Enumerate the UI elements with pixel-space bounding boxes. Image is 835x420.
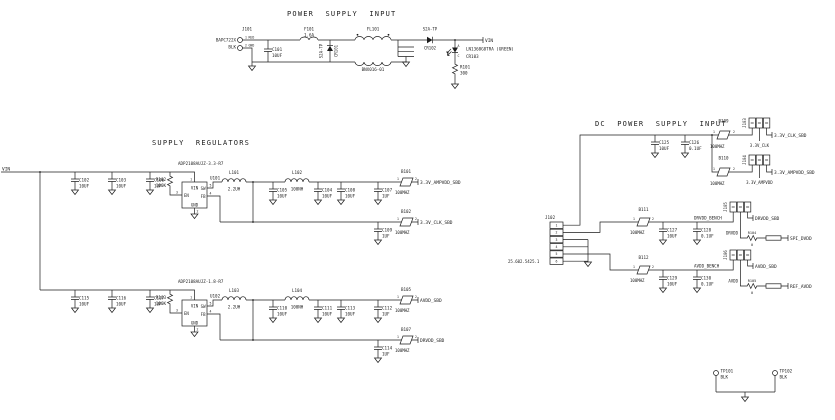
fl101-polarity-dot [388, 34, 390, 36]
b111-pin2-number: 2 [652, 217, 654, 221]
c104-refdes: C104 [322, 188, 333, 193]
ferrite-bead-b110 [717, 168, 730, 176]
c126-value: 0.1UF [689, 146, 702, 151]
ground-symbol [109, 190, 116, 195]
b107-pin1-number: 1 [397, 335, 399, 339]
capacitor-c103 [108, 179, 116, 182]
u101-pin-en: EN [184, 193, 189, 198]
l102-refdes: L102 [292, 170, 303, 175]
u101-pin5-number: 5 [210, 183, 212, 187]
tp102-color: BLK [780, 375, 788, 380]
section-title-power-supply-input: POWER SUPPLY INPUT [287, 10, 396, 18]
r105-refdes: R105 [748, 279, 756, 283]
cr103-anode-label: A [458, 44, 460, 48]
c101-value: 10UF [272, 53, 283, 58]
c107-refdes: C107 [382, 188, 393, 193]
ground-symbol [249, 66, 256, 71]
section-title-supply-regulators: SUPPLY REGULATORS [152, 139, 250, 147]
l104-refdes: L104 [292, 288, 303, 293]
j102-pin1-number: 1 [556, 223, 558, 227]
j105-refdes: J105 [723, 202, 728, 212]
schematic-canvas: POWER SUPPLY INPUT J101 BAPC722X BLK 1 2… [0, 0, 835, 420]
b112-refdes: B112 [638, 255, 649, 260]
cr103-partnum: LN1368G8TRA (GREEN) [466, 47, 514, 52]
cr101-partnum: S2A-TP [319, 43, 324, 58]
net-flag-3v3-ampvdd-sbd: 3.3V_AMPVDD_SBD [420, 180, 461, 186]
cr102-diode-symbol [427, 37, 433, 43]
capacitor-c130 [693, 277, 701, 280]
u102-pin-sw: SW [201, 304, 206, 309]
capacitor-c109 [374, 229, 382, 232]
l104-value: 100NH [291, 305, 304, 310]
j102-pin6-number: 6 [556, 259, 558, 263]
capacitor-c116 [108, 297, 116, 300]
r104-jumper-body [766, 236, 781, 240]
j101-pin1-name: RED [249, 35, 255, 39]
c109-refdes: C109 [382, 228, 393, 233]
j106-refdes: J106 [723, 250, 728, 260]
capacitor-c111 [314, 307, 322, 310]
b112-pin2-number: 2 [652, 265, 654, 269]
net-flag-avdd-sbd-dc: AVDD_SBD [755, 264, 777, 270]
j102-pin2-number: 2 [556, 231, 558, 235]
u101-pin3-number: 3 [176, 191, 178, 195]
r103-refdes: R103 [156, 295, 167, 300]
b101-value: 100MHZ [395, 190, 410, 195]
net-flag-drvdd-sbd: DRVDD_SBD [420, 338, 445, 344]
u102-pin3-number: 3 [176, 309, 178, 313]
capacitor-c114 [374, 347, 382, 350]
connector-j102 [550, 222, 563, 264]
ground-symbol [403, 62, 410, 67]
cr101-refdes: CR101 [334, 44, 339, 57]
ground-symbol [375, 200, 382, 205]
ferrite-bead-b105 [400, 296, 413, 304]
b102-pin1-number: 1 [397, 217, 399, 221]
ground-symbol [315, 318, 322, 323]
c103-value: 10UF [116, 184, 127, 189]
j101-pin2-name: GND [249, 43, 255, 47]
c102-value: 10UF [79, 184, 90, 189]
r102-refdes: R102 [156, 177, 167, 182]
j101-pin2-circle [238, 46, 243, 51]
r103-value: 100K [156, 301, 167, 306]
sr-wires [1, 172, 418, 358]
j101-wire-color: BLK [228, 45, 236, 50]
ground-symbol [270, 318, 277, 323]
u102-pin-en: EN [184, 311, 189, 316]
c114-refdes: C114 [382, 346, 393, 351]
c107-value: 1UF [382, 194, 390, 199]
u101-partnum: ADP2108AUJZ-3.3-R7 [178, 161, 224, 166]
b102-refdes: B102 [401, 209, 412, 214]
u101-pin2-number: 2 [197, 210, 199, 214]
b110-pin1-number: 1 [713, 167, 715, 171]
net-label-avdd-bench: AVDD_BENCH [694, 264, 720, 269]
ground-symbol [375, 318, 382, 323]
ground-symbol [375, 240, 382, 245]
junction-dot [252, 221, 254, 223]
j101-pin1-number: 1 [245, 36, 247, 40]
inductor-l104 [285, 297, 309, 300]
tp102-circle [773, 371, 778, 376]
b110-refdes: B110 [718, 156, 729, 161]
b107-value: 100MHZ [395, 348, 410, 353]
net-label-drvdd-bench: DRVDD_BENCH [694, 216, 722, 221]
r101-value: 300 [460, 71, 468, 76]
r105-value: 0 [751, 291, 753, 295]
c109-value: 1UF [382, 234, 390, 239]
net-flag-vin-input: VIN [2, 167, 10, 173]
f101-value: 1.6A [304, 33, 315, 38]
b101-pin1-number: 1 [397, 177, 399, 181]
c115-refdes: C115 [79, 296, 90, 301]
ferrite-bead-b102 [400, 218, 413, 226]
c103-refdes: C103 [116, 178, 127, 183]
resistor-r105 [745, 284, 759, 289]
c108-value: 10UF [345, 194, 356, 199]
c101-refdes: C101 [272, 47, 283, 52]
u102-pin-vin: VIN [191, 304, 199, 309]
u101-pin-vin: VIN [191, 186, 199, 191]
net-flag-ref-avdd: REF_AVDD [790, 284, 812, 290]
cr103-refdes: CR103 [466, 54, 479, 59]
capacitor-c104 [314, 189, 322, 192]
j103-refdes: J103 [742, 118, 747, 128]
resistor-r103 [168, 292, 173, 306]
capacitor-c129 [659, 277, 667, 280]
b112-value: 100MHZ [630, 278, 645, 283]
junction-dot [252, 299, 254, 301]
section-dc-power-supply-input: DC POWER SUPPLY INPUT J102 25.602.5425.1… [508, 118, 815, 295]
capacitor-c107 [374, 189, 382, 192]
c110-refdes: C110 [277, 306, 288, 311]
junction-dot [39, 171, 41, 173]
capacitor-c106 [146, 179, 154, 182]
ground-symbol [660, 240, 667, 245]
c113-refdes: C113 [345, 306, 356, 311]
ground-symbol [191, 332, 198, 337]
j101-pin2-number: 2 [245, 44, 247, 48]
section-power-supply-input: POWER SUPPLY INPUT J101 BAPC722X BLK 1 2… [216, 10, 514, 89]
u102-pin-gnd: GND [191, 321, 199, 326]
b111-refdes: B111 [638, 207, 649, 212]
b109-refdes: B109 [718, 119, 729, 124]
net-flag-vin: VIN [485, 38, 493, 44]
b101-refdes: B101 [401, 169, 412, 174]
u101-pin1-number: 1 [190, 178, 192, 182]
c128-refdes: C128 [701, 228, 712, 233]
j101-pin1-circle [238, 38, 243, 43]
net-label-3v3-ampvdd: 3.3V_AMPVDD [746, 180, 773, 185]
u102-pin2-number: 2 [197, 328, 199, 332]
c130-refdes: C130 [701, 276, 712, 281]
section-test-points: TP101 BLK TP102 BLK [714, 369, 793, 402]
b105-pin2-number: 2 [415, 295, 417, 299]
r105-jumper-body [766, 284, 781, 288]
header-j103 [749, 118, 770, 128]
net-label-drvdd: DRVDD [726, 231, 739, 236]
b102-value: 100MHZ [395, 230, 410, 235]
ground-symbol [742, 397, 749, 402]
b107-refdes: B107 [401, 327, 412, 332]
b112-pin1-number: 1 [633, 265, 635, 269]
c129-value: 10UF [667, 282, 678, 287]
c116-value: 10UF [116, 302, 127, 307]
u102-pin1-number: 1 [190, 296, 192, 300]
ground-symbol [109, 308, 116, 313]
c111-value: 10UF [322, 312, 333, 317]
ground-symbol [338, 318, 345, 323]
header-j104 [749, 155, 770, 165]
c105-refdes: C105 [277, 188, 288, 193]
net-flag-3v3-ampvdd-sbd-dc: 3.3V_AMPVDD_SBD [774, 170, 815, 176]
b102-pin2-number: 2 [415, 217, 417, 221]
net-flag-3v3-clk-sbd-dc: 3.3V_CLK_SBD [774, 133, 807, 139]
ground-symbol [585, 262, 592, 267]
l103-value: 2.2UH [228, 305, 241, 310]
r102-value: 100K [156, 183, 167, 188]
ground-symbol [452, 84, 459, 89]
c125-value: 10UF [659, 146, 670, 151]
b110-value: 100MHZ [710, 181, 725, 186]
cr103-cathode-label: C [458, 54, 460, 58]
u101-pin-gnd: GND [191, 203, 199, 208]
capacitor-c127 [659, 229, 667, 232]
c114-value: 1UF [382, 352, 390, 357]
j102-partnum: 25.602.5425.1 [508, 259, 540, 264]
u102-pin4-number: 4 [210, 309, 212, 313]
fl101-partnum: BNX016-01 [362, 67, 385, 72]
ferrite-bead-b111 [637, 218, 650, 226]
b111-pin1-number: 1 [633, 217, 635, 221]
capacitor-c126 [681, 142, 689, 145]
capacitor-c128 [693, 229, 701, 232]
ferrite-bead-b107 [400, 336, 413, 344]
b111-value: 100MHZ [630, 230, 645, 235]
c113-value: 10UF [345, 312, 356, 317]
psi-wires [243, 37, 484, 85]
tp101-color: BLK [721, 375, 729, 380]
r104-value: 0 [751, 243, 753, 247]
cr101-diode-symbol [327, 46, 333, 51]
c127-value: 10UF [667, 234, 678, 239]
j101-partnum: BAPC722X [216, 38, 237, 43]
l103-refdes: L103 [229, 288, 240, 293]
net-label-3v3-clk: 3.3V_CLK [750, 143, 770, 148]
net-flag-avdd-sbd: AVDD_SBD [420, 298, 442, 304]
header-j105 [730, 202, 751, 212]
c112-value: 1UF [382, 312, 390, 317]
b105-refdes: B105 [401, 287, 412, 292]
header-j106 [730, 250, 751, 260]
inductor-l103 [222, 297, 246, 300]
cr102-refdes: CR102 [424, 46, 437, 51]
j101-refdes: J101 [242, 27, 253, 32]
c112-refdes: C112 [382, 306, 393, 311]
c125-refdes: C125 [659, 140, 670, 145]
c116-refdes: C116 [116, 296, 127, 301]
l101-value: 2.2UH [228, 187, 241, 192]
b109-value: 100MHZ [710, 144, 725, 149]
junction-dot [252, 181, 254, 183]
inductor-l102 [285, 179, 309, 182]
ground-symbol [191, 214, 198, 219]
c102-refdes: C102 [79, 178, 90, 183]
ground-symbol [682, 153, 689, 158]
ground-symbol [147, 190, 154, 195]
c111-refdes: C111 [322, 306, 333, 311]
c108-refdes: C108 [345, 188, 356, 193]
capacitor-c105 [269, 189, 277, 192]
b109-pin1-number: 1 [713, 130, 715, 134]
b107-pin2-number: 2 [415, 335, 417, 339]
l101-refdes: L101 [229, 170, 240, 175]
c129-refdes: C129 [667, 276, 678, 281]
c127-refdes: C127 [667, 228, 678, 233]
capacitor-c112 [374, 307, 382, 310]
cr102-partnum: S2A-TP [423, 27, 438, 32]
resistor-r101 [453, 62, 458, 76]
u102-refdes: U102 [210, 294, 221, 299]
b101-pin2-number: 2 [415, 177, 417, 181]
ground-symbol [660, 288, 667, 293]
capacitor-c117 [146, 297, 154, 300]
ground-symbol [72, 190, 79, 195]
j102-refdes: J102 [545, 215, 556, 220]
tp102-refdes: TP102 [780, 369, 793, 374]
ground-symbol [72, 308, 79, 313]
ferrite-bead-b109 [717, 131, 730, 139]
u102-pin-fb: FB [201, 312, 206, 317]
junction-dot [711, 134, 713, 136]
c128-value: 0.1UF [701, 234, 714, 239]
ground-symbol [652, 153, 659, 158]
ferrite-bead-b101 [400, 178, 413, 186]
u102-partnum: ADP2108AUJZ-1.8-R7 [178, 279, 224, 284]
ground-symbol [270, 200, 277, 205]
junction-dot [252, 339, 254, 341]
l102-value: 100NH [291, 187, 304, 192]
net-flag-3v3-clk-sbd: 3.3V_CLK_SBD [420, 220, 453, 226]
capacitor-c113 [337, 307, 345, 310]
ground-symbol [338, 200, 345, 205]
net-flag-spi-dvdd: SPI_DVDD [790, 236, 812, 242]
ground-symbol [147, 308, 154, 313]
capacitor-c102 [71, 179, 79, 182]
b109-pin2-number: 2 [733, 130, 735, 134]
u101-refdes: U101 [210, 176, 221, 181]
j104-refdes: J104 [742, 155, 747, 165]
c104-value: 10UF [322, 194, 333, 199]
ground-symbol [375, 358, 382, 363]
capacitor-c110 [269, 307, 277, 310]
c110-value: 10UF [277, 312, 288, 317]
capacitor-c115 [71, 297, 79, 300]
r101-refdes: R101 [460, 65, 471, 70]
j102-pin4-number: 4 [556, 245, 558, 249]
j102-pin5-number: 5 [556, 252, 558, 256]
tp101-refdes: TP101 [721, 369, 734, 374]
f101-refdes: F101 [304, 27, 315, 32]
cr103-led-symbol [452, 48, 458, 53]
net-flag-drvdd-sbd-dc: DRVDD_SBD [755, 216, 780, 222]
capacitor-c125 [651, 142, 659, 145]
fl101-polarity-dot [357, 34, 359, 36]
c115-value: 10UF [79, 302, 90, 307]
r104-refdes: R104 [748, 231, 756, 235]
junction-dot [454, 39, 456, 41]
u101-pin-fb: FB [201, 194, 206, 199]
u101-pin-sw: SW [201, 186, 206, 191]
c126-refdes: C126 [689, 140, 700, 145]
ground-symbol [694, 240, 701, 245]
tp101-circle [714, 371, 719, 376]
schematic-page: POWER SUPPLY INPUT J101 BAPC722X BLK 1 2… [0, 0, 835, 420]
b105-value: 100MHZ [395, 308, 410, 313]
fl101-refdes: FL101 [367, 27, 380, 32]
b105-pin1-number: 1 [397, 295, 399, 299]
ground-symbol [694, 288, 701, 293]
inductor-l101 [222, 179, 246, 182]
u101-pin4-number: 4 [210, 191, 212, 195]
ferrite-bead-b112 [637, 266, 650, 274]
ground-symbol [315, 200, 322, 205]
resistor-r102 [168, 174, 173, 188]
net-label-avdd: AVDD [728, 279, 738, 284]
b110-pin2-number: 2 [733, 167, 735, 171]
c105-value: 10UF [277, 194, 288, 199]
capacitor-c108 [337, 189, 345, 192]
u102-pin5-number: 5 [210, 301, 212, 305]
section-supply-regulators: SUPPLY REGULATORS VIN C102 10UF C103 10U… [1, 139, 461, 363]
c130-value: 0.1UF [701, 282, 714, 287]
j102-pin3-number: 3 [556, 238, 558, 242]
section-title-dc-power-supply-input: DC POWER SUPPLY INPUT [595, 120, 727, 128]
capacitor-c101 [264, 49, 272, 52]
resistor-r104 [745, 236, 759, 241]
